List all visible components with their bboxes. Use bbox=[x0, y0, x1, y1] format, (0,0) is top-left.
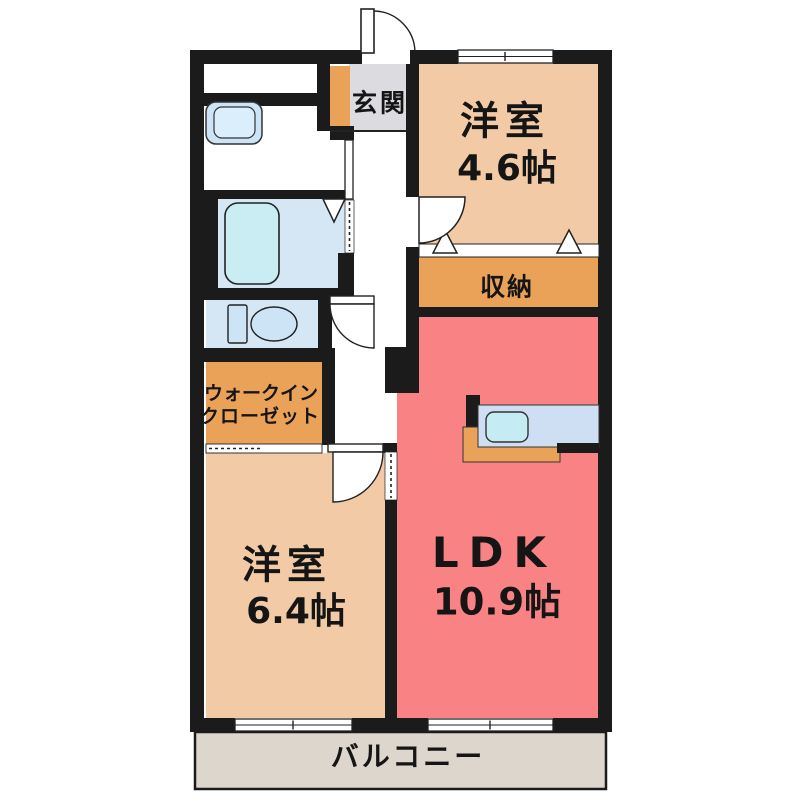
label-room46-name: 洋室 bbox=[460, 103, 550, 142]
window-ldk-bottom bbox=[428, 719, 553, 731]
wall-bathroom-left bbox=[203, 198, 218, 288]
label-wic-line1: ウォークイン bbox=[204, 385, 318, 404]
kitchen-wall-piece bbox=[557, 443, 599, 453]
label-ldk-size: 10.9帖 bbox=[433, 584, 561, 621]
label-wic-line2: クローゼット bbox=[200, 408, 320, 427]
wall-room46-left-lower bbox=[406, 247, 419, 347]
entrance-door-swing bbox=[374, 11, 415, 52]
wall-genkan-left bbox=[317, 50, 330, 131]
room64-door-leaf bbox=[328, 444, 383, 452]
ldk-door-opening bbox=[385, 393, 397, 443]
wall-ldk-room64 bbox=[385, 500, 397, 718]
washbasin bbox=[206, 102, 262, 144]
window-room46-top bbox=[458, 50, 553, 63]
wall-room46-left-upper bbox=[406, 63, 419, 197]
wall-storage-bottom bbox=[406, 307, 612, 317]
wall-top-mid-seg bbox=[410, 50, 458, 64]
wall-bottom-seg2 bbox=[352, 718, 428, 732]
floor-plan-drawing bbox=[0, 0, 800, 800]
label-room46-size: 4.6帖 bbox=[457, 151, 557, 187]
label-genkan: 玄関 bbox=[352, 91, 408, 116]
toilet bbox=[228, 305, 297, 343]
label-room64-name: 洋室 bbox=[242, 547, 332, 586]
wall-left bbox=[190, 50, 204, 732]
wall-bath-toilet-divider bbox=[203, 288, 350, 300]
label-ldk-name: LDK bbox=[432, 532, 556, 574]
wall-wic-right bbox=[322, 362, 335, 445]
label-balcony: バルコニー bbox=[331, 743, 485, 771]
label-storage: 収納 bbox=[480, 275, 534, 300]
kitchen-sink bbox=[486, 412, 528, 442]
wall-ldk-jog bbox=[385, 347, 419, 393]
entrance-door-leaf bbox=[361, 9, 374, 53]
wall-washroom-bath-divider bbox=[203, 190, 346, 199]
wall-bathroom-hall bbox=[338, 253, 354, 300]
room46-door-opening bbox=[406, 197, 419, 247]
toilet-door-leaf bbox=[330, 296, 374, 304]
wall-ldk-door-post bbox=[383, 443, 397, 453]
wall-right bbox=[598, 50, 612, 732]
wall-bottom-seg1 bbox=[190, 718, 235, 732]
floor-plan-page: 玄関 洋室 4.6帖 収納 LDK 10.9帖 ウォークイン クローゼット 洋室… bbox=[0, 0, 800, 800]
label-room64-size: 6.4帖 bbox=[246, 594, 346, 630]
room-ldk bbox=[397, 317, 598, 718]
washroom-sliding-door bbox=[345, 140, 353, 199]
bathtub bbox=[225, 203, 279, 284]
wall-top-left-seg bbox=[190, 50, 362, 64]
kitchen-counter bbox=[463, 395, 599, 462]
wall-below-toilet bbox=[190, 348, 335, 362]
wall-bottom-seg3 bbox=[553, 718, 612, 732]
window-room64-bottom bbox=[235, 719, 352, 731]
genkan-shoe-cabinet bbox=[330, 66, 350, 131]
wall-genkan-corner bbox=[330, 126, 354, 140]
